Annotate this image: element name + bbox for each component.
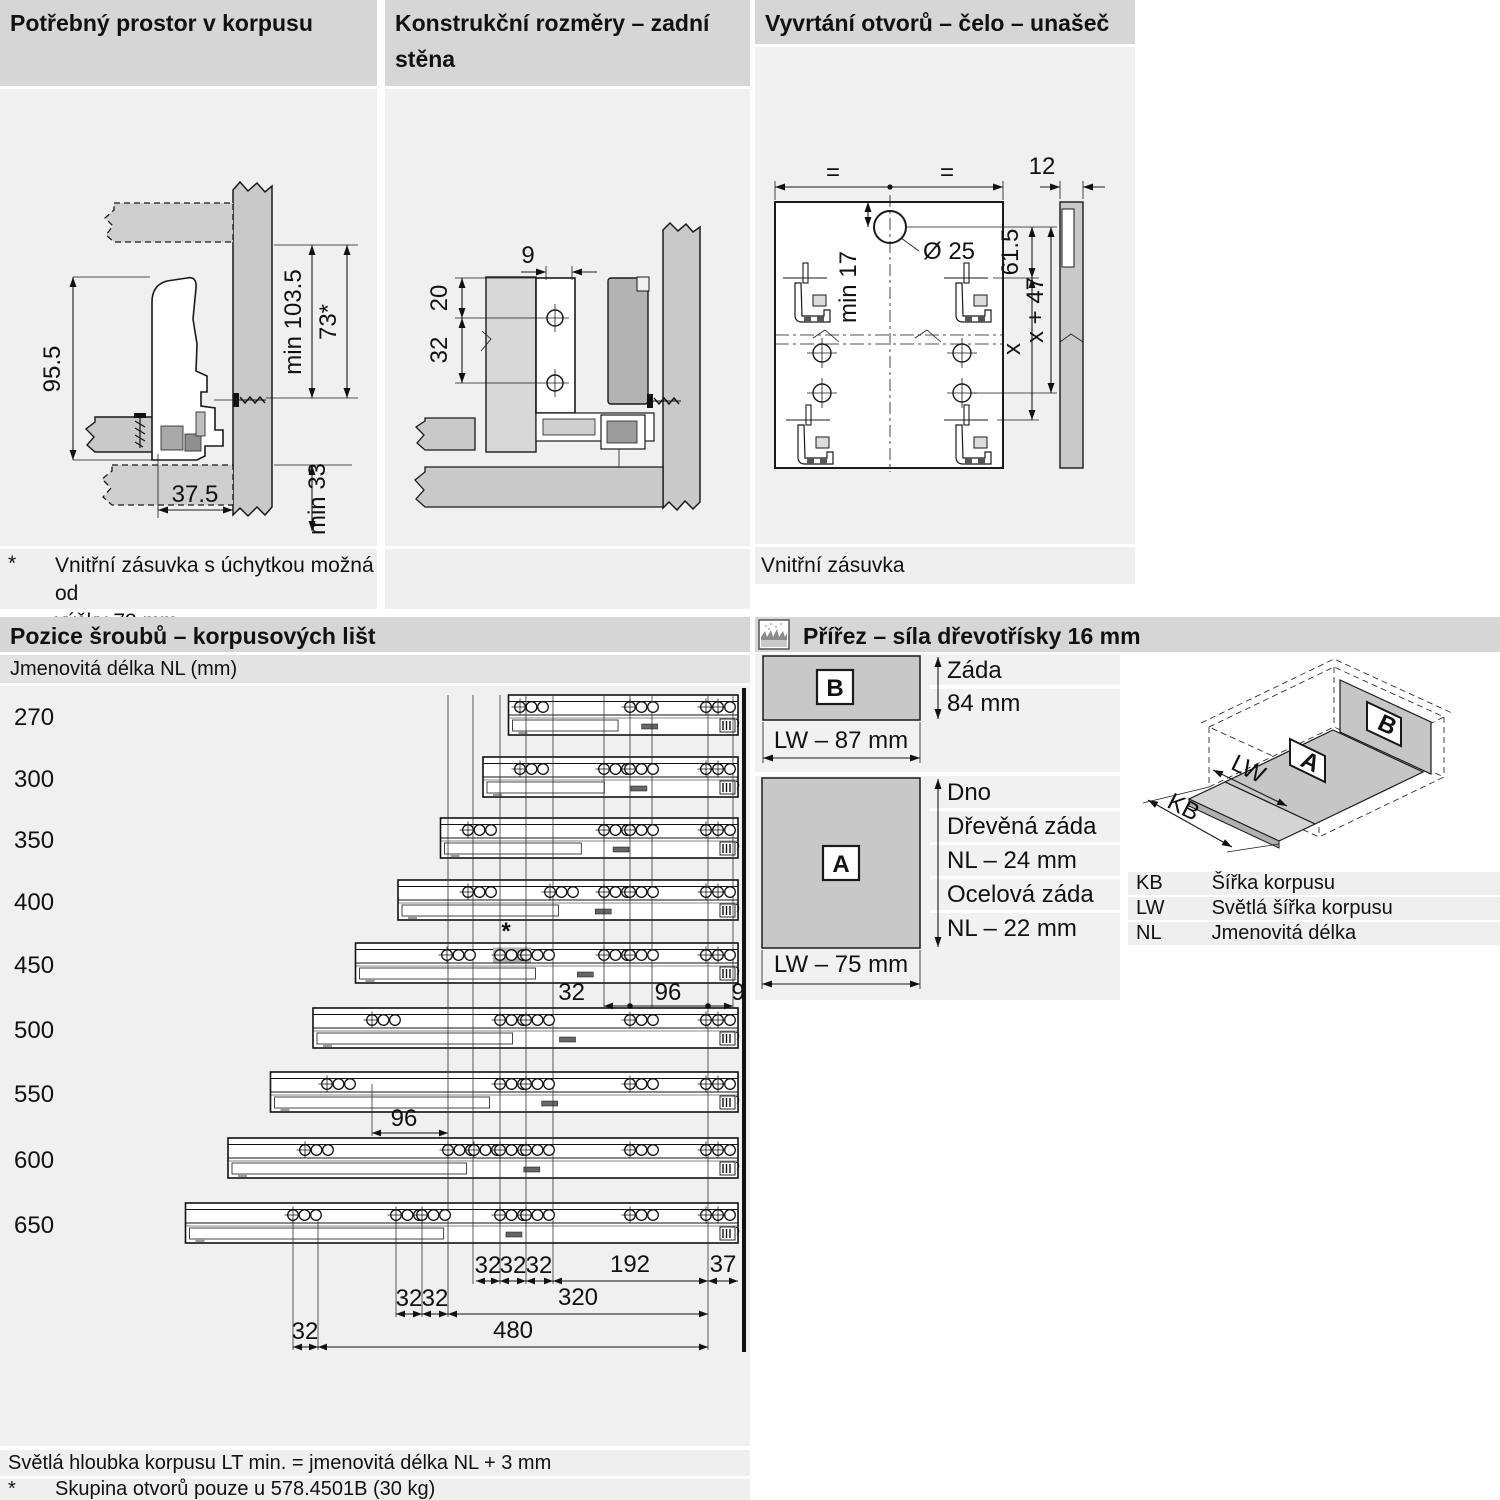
rear-wall-diagram: 9 20 32 xyxy=(385,89,750,546)
svg-text:32: 32 xyxy=(396,1285,423,1312)
svg-text:320: 320 xyxy=(558,1284,598,1311)
panel2-title-line2: stěna xyxy=(395,42,740,78)
nl-label-600: 600 xyxy=(14,1147,54,1174)
required-space-diagram: 95.5 min 103.5 73* min 33 37.5 xyxy=(0,89,377,546)
panel-a-line3: NL – 24 mm xyxy=(947,847,1077,874)
panel-b-right2: 84 mm xyxy=(947,690,1020,717)
panel4-subtitle: Jmenovitá délka NL (mm) xyxy=(10,658,237,680)
svg-text:32: 32 xyxy=(500,1252,527,1279)
panel1-title: Potřebný prostor v korpusu xyxy=(10,10,313,36)
panel2-diagram-area: 9 20 32 xyxy=(385,89,750,546)
panel-a-label: A xyxy=(832,851,849,878)
runner-block-inner xyxy=(185,434,201,451)
panel-b-right1: Záda xyxy=(947,657,1002,684)
legend-desc-lw: Světlá šířka korpusu xyxy=(1212,897,1393,919)
front-drilling-diagram: = = 12 Ø 25 min 17 xyxy=(755,47,1135,544)
svg-text:32: 32 xyxy=(475,1252,502,1279)
dim-9: 9 xyxy=(521,242,534,269)
nl-label-500: 500 xyxy=(14,1017,54,1044)
legend-desc-kb: Šířka korpusu xyxy=(1212,872,1335,894)
drawer-bottom-board xyxy=(86,417,158,452)
svg-text:480: 480 xyxy=(493,1317,533,1344)
nl-label-400: 400 xyxy=(14,889,54,916)
svg-text:96: 96 xyxy=(391,1105,418,1132)
saw-icon xyxy=(758,619,790,650)
svg-text:37: 37 xyxy=(710,1251,737,1278)
runner-assembly xyxy=(536,413,654,467)
panel-a-line4: Ocelová záda xyxy=(947,881,1094,908)
nl-label-650: 650 xyxy=(14,1212,54,1239)
svg-text:32: 32 xyxy=(558,979,585,1006)
side-block-notch xyxy=(637,277,649,291)
nl-label-270: 270 xyxy=(14,704,54,731)
panel-a-line5: NL – 22 mm xyxy=(947,915,1077,942)
panel5-header: Přířez – síla dřevotřísky 16 mm xyxy=(755,617,1500,652)
drawer-bottom-board xyxy=(416,418,475,450)
nl-label-350: 350 xyxy=(14,827,54,854)
dim-95-5: 95.5 xyxy=(39,346,66,393)
runner-block-outer xyxy=(161,426,183,450)
dim-12: 12 xyxy=(1029,153,1056,180)
page: Potřebný prostor v korpusu Konstrukční r… xyxy=(0,0,1500,1500)
nl-label-300: 300 xyxy=(14,766,54,793)
cabinet-side-panel xyxy=(233,182,272,516)
panel4-subtitle-bar: Jmenovitá délka NL (mm) xyxy=(0,655,750,683)
panel2-footnote-empty xyxy=(385,549,750,609)
cutting-diagram: B Záda 84 mm LW – 87 mm A Dno Dřevěná zá… xyxy=(755,654,1500,1000)
footer-line1: Světlá hloubka korpusu LT min. = jmenovi… xyxy=(8,1452,551,1474)
svg-text:192: 192 xyxy=(610,1251,650,1278)
dim-20: 20 xyxy=(426,285,453,312)
footnote-line1: Vnitřní zásuvka s úchytkou možná od xyxy=(55,552,377,608)
panel3-caption-text: Vnitřní zásuvka xyxy=(761,554,905,577)
panel1-header: Potřebný prostor v korpusu xyxy=(0,0,377,86)
footer-line2: Skupina otvorů pouze u 578.4501B (30 kg) xyxy=(55,1478,435,1500)
fixing-plate xyxy=(536,278,575,413)
cabinet-side-panel xyxy=(663,223,700,510)
dim-min-17: min 17 xyxy=(835,251,862,323)
panel4-footer1: Světlá hloubka korpusu LT min. = jmenovi… xyxy=(0,1450,750,1476)
rails-chart: 270300350400450500550600650*329699632323… xyxy=(0,686,750,1446)
panel4-title: Pozice šroubů – korpusových lišt xyxy=(10,623,376,649)
panel-a-line2: Dřevěná záda xyxy=(947,813,1097,840)
panel-a-line1: Dno xyxy=(947,779,991,806)
dim-61-5: 61.5 xyxy=(997,229,1024,276)
panel3-header: Vyvrtání otvorů – čelo – unašeč xyxy=(755,0,1135,44)
dim-73: 73* xyxy=(315,304,342,340)
panel-b-width: LW – 87 mm xyxy=(774,727,908,754)
iso-arrow-kb: KB xyxy=(1163,788,1204,827)
svg-text:32: 32 xyxy=(292,1318,319,1345)
panel3-caption: Vnitřní zásuvka xyxy=(755,547,1135,584)
panel2-title-line1: Konstrukční rozměry – zadní xyxy=(395,6,740,42)
panel3-diagram-area: = = 12 Ø 25 min 17 xyxy=(755,47,1135,544)
drawer-side-block xyxy=(608,278,648,404)
legend-abbr-kb: KB xyxy=(1128,872,1206,895)
dim-32: 32 xyxy=(426,337,453,364)
panel4-chart-area: 270300350400450500550600650*329699632323… xyxy=(0,686,750,1446)
rear-wall-board xyxy=(486,277,536,452)
legend-abbr-lw: LW xyxy=(1128,897,1206,920)
footnote-marker: * xyxy=(8,552,16,576)
panel5-title: Přířez – síla dřevotřísky 16 mm xyxy=(803,623,1141,649)
iso-cabinet-sketch: B A LW KB xyxy=(1143,659,1452,852)
dim-hole-dia: Ø 25 xyxy=(923,238,975,265)
legend-row-nl: NL Jmenovitá délka xyxy=(1128,922,1500,945)
hook-pin xyxy=(196,412,205,436)
footer-marker: * xyxy=(8,1479,16,1500)
star-marker: * xyxy=(501,918,511,945)
legend-row-lw: LW Světlá šířka korpusu xyxy=(1128,897,1500,920)
panel4-header: Pozice šroubů – korpusových lišt xyxy=(0,617,750,652)
panel3-title: Vyvrtání otvorů – čelo – unašeč xyxy=(765,10,1109,36)
panel5-content: B Záda 84 mm LW – 87 mm A Dno Dřevěná zá… xyxy=(755,654,1500,1000)
panel-b-label: B xyxy=(826,675,843,702)
dim-min-33: min 33 xyxy=(304,463,331,535)
legend-abbr-nl: NL xyxy=(1128,922,1206,945)
nl-label-550: 550 xyxy=(14,1081,54,1108)
svg-text:32: 32 xyxy=(526,1252,553,1279)
svg-text:32: 32 xyxy=(422,1285,449,1312)
dim-eq-left: = xyxy=(826,159,840,186)
panel1-footnote: * Vnitřní zásuvka s úchytkou možná od vý… xyxy=(0,549,377,609)
bottom-shelf xyxy=(415,467,663,507)
dim-x: x xyxy=(999,343,1026,355)
dim-37-5: 37.5 xyxy=(172,481,219,508)
dim-min-103-5: min 103.5 xyxy=(280,269,307,374)
dim-eq-right: = xyxy=(940,159,954,186)
side-edge-insert xyxy=(1062,209,1074,267)
panel1-diagram-area: 95.5 min 103.5 73* min 33 37.5 xyxy=(0,89,377,546)
legend-desc-nl: Jmenovitá délka xyxy=(1212,922,1357,944)
dim-x47: x + 47 xyxy=(1022,277,1049,343)
panel2-header: Konstrukční rozměry – zadní stěna xyxy=(385,0,750,86)
panel4-footer2: * Skupina otvorů pouze u 578.4501B (30 k… xyxy=(0,1479,750,1500)
upper-shelf-dashed xyxy=(105,203,233,242)
nl-label-450: 450 xyxy=(14,952,54,979)
panel-a-width: LW – 75 mm xyxy=(774,951,908,978)
svg-text:96: 96 xyxy=(655,979,682,1006)
legend-row-kb: KB Šířka korpusu xyxy=(1128,872,1500,895)
